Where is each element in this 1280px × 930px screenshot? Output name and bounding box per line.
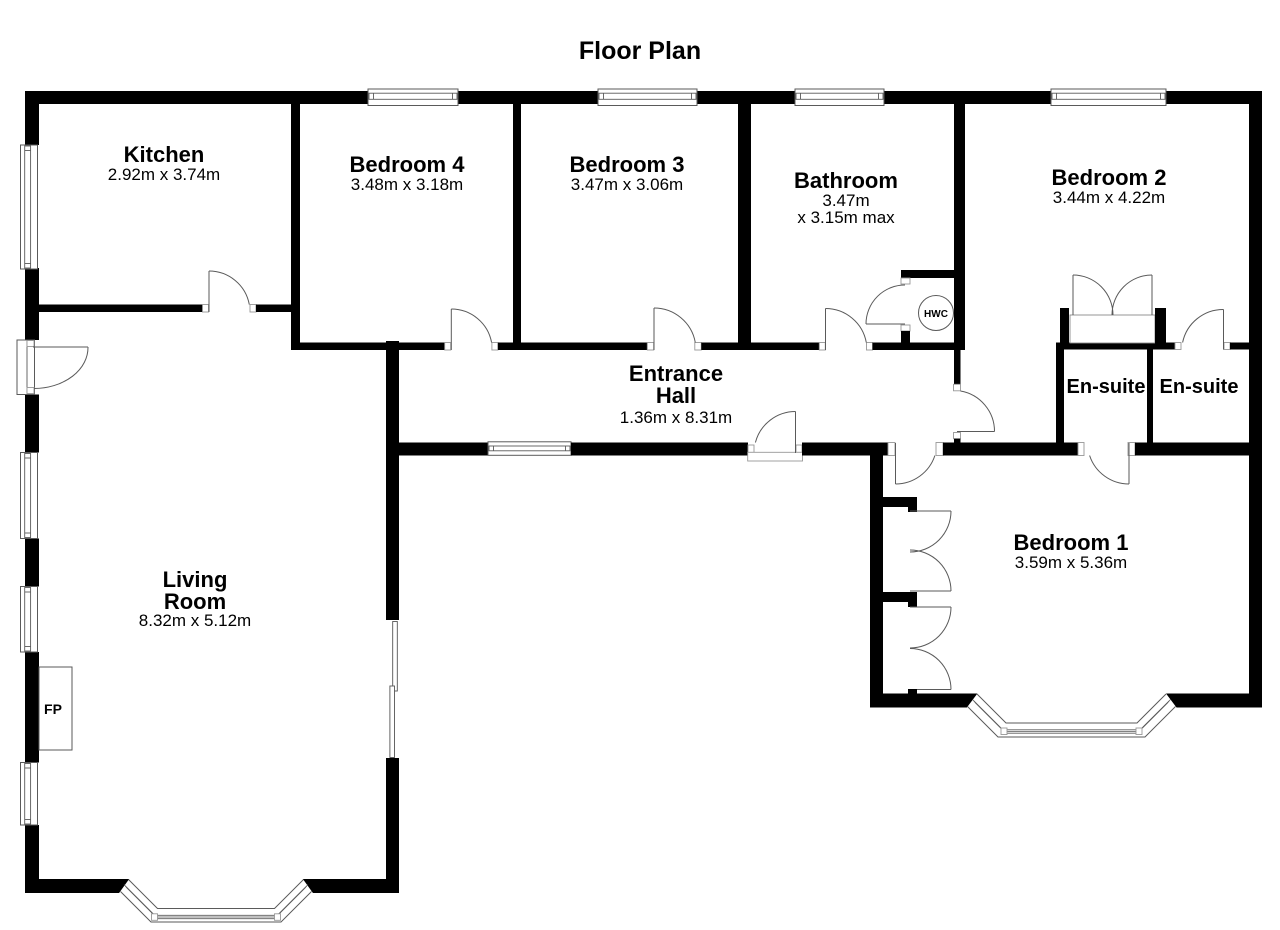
- svg-text:Bathroom: Bathroom: [794, 168, 898, 193]
- svg-text:2.92m x 3.74m: 2.92m x 3.74m: [108, 165, 220, 184]
- svg-text:Bedroom 3: Bedroom 3: [570, 152, 685, 177]
- svg-text:Hall: Hall: [656, 383, 696, 408]
- svg-text:HWC: HWC: [924, 309, 948, 320]
- svg-text:3.44m x 4.22m: 3.44m x 4.22m: [1053, 188, 1165, 207]
- svg-text:Bedroom 1: Bedroom 1: [1014, 530, 1129, 555]
- svg-text:Floor Plan: Floor Plan: [579, 37, 701, 65]
- svg-text:x 3.15m max: x 3.15m max: [797, 208, 895, 227]
- svg-text:Kitchen: Kitchen: [124, 142, 205, 167]
- svg-text:Bedroom 2: Bedroom 2: [1052, 165, 1167, 190]
- svg-text:Bedroom 4: Bedroom 4: [350, 152, 466, 177]
- svg-text:3.47m x 3.06m: 3.47m x 3.06m: [571, 175, 683, 194]
- svg-text:8.32m x 5.12m: 8.32m x 5.12m: [139, 611, 251, 630]
- svg-text:En-suite: En-suite: [1067, 376, 1146, 398]
- svg-text:1.36m x 8.31m: 1.36m x 8.31m: [620, 408, 732, 427]
- svg-text:3.48m x 3.18m: 3.48m x 3.18m: [351, 175, 463, 194]
- svg-text:FP: FP: [44, 701, 62, 717]
- svg-text:3.59m x 5.36m: 3.59m x 5.36m: [1015, 553, 1127, 572]
- svg-text:En-suite: En-suite: [1160, 376, 1239, 398]
